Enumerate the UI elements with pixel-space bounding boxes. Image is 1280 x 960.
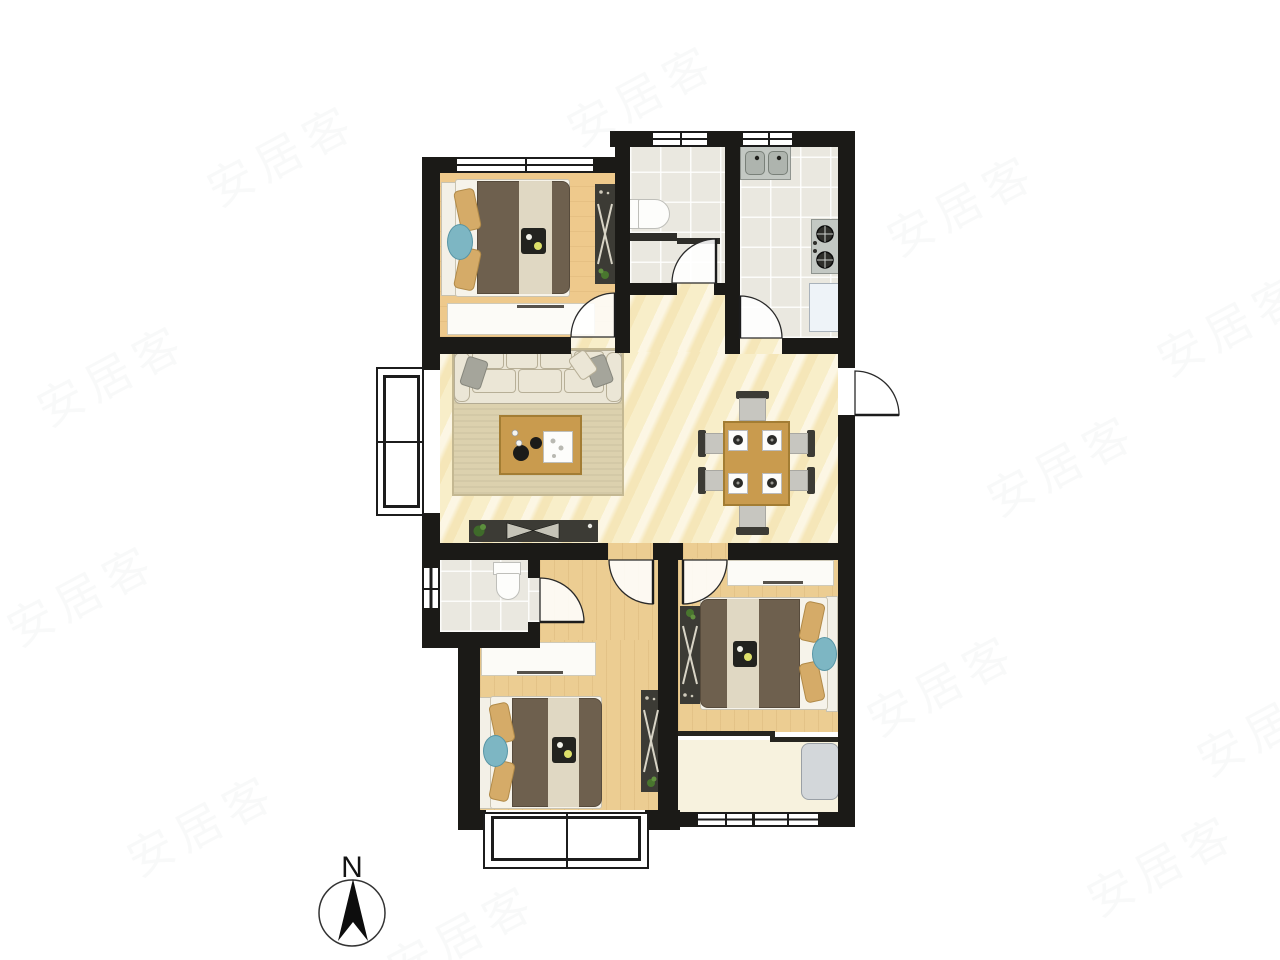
plan-overlay: N (0, 0, 1280, 960)
door-swing (672, 239, 716, 283)
door-swing (571, 293, 615, 337)
door-swing (740, 296, 782, 338)
door-swing (683, 560, 727, 604)
coffee-table-items (512, 430, 564, 461)
plate-icons (733, 435, 777, 488)
floor-plan: N 安居客安居客安居客安居客安居客安居客安居客安居客安居客安居客安居客安居客 (0, 0, 1280, 960)
bed-tray-items (526, 234, 752, 758)
stove-burner-icons (813, 226, 833, 268)
door-swing (609, 560, 653, 604)
north-arrow: N (319, 851, 385, 946)
door-swing (855, 371, 899, 415)
door-swings (540, 239, 899, 622)
door-swing (540, 578, 584, 622)
wardrobe-hanger-icons (598, 204, 697, 772)
sink-faucet-icons (755, 156, 781, 160)
compass-label: N (341, 851, 363, 884)
tv-icon (507, 523, 559, 539)
